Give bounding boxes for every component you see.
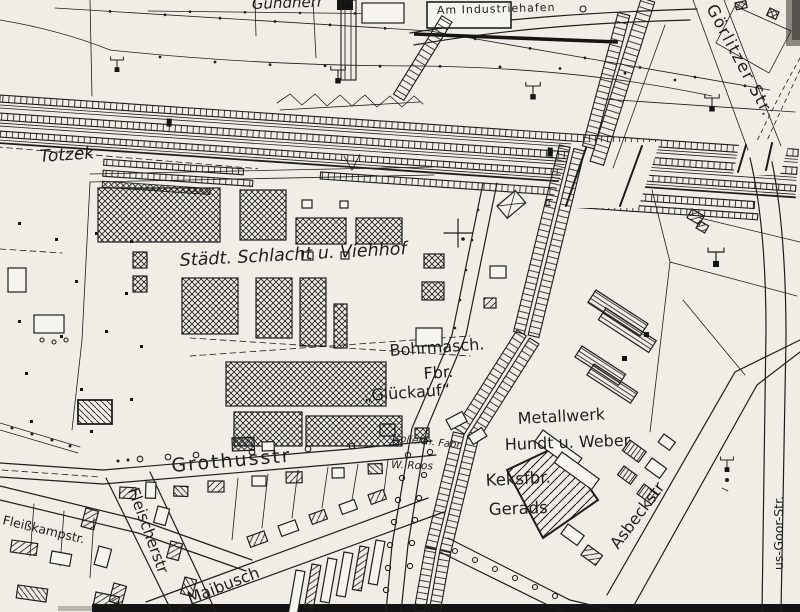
label-am-industriehafen: Am Industriehafen: [437, 1, 556, 17]
label-w-roos: W. Roos: [391, 459, 434, 472]
label-goor-str: us-Goor-Str.: [771, 496, 786, 570]
map-canvas: Totzek Gundherr Am Industriehafen Görlit…: [0, 0, 800, 612]
label-keksfabrik-1: Keksfbr.: [485, 468, 551, 490]
power-pole-icon: [708, 248, 724, 267]
harbor-symbol-icon: [580, 6, 586, 12]
label-totzek: Totzek: [39, 143, 96, 167]
label-keksfabrik-2: Gerads: [488, 498, 548, 519]
power-pole-icon: [111, 57, 124, 72]
label-goerlitzer-str: Görlitzer Str.: [702, 1, 777, 120]
label-metallwerk-2: Hundt u. Weber: [504, 431, 630, 454]
power-pole-icon: [526, 82, 540, 99]
label-bohrmasch-1: Bohrmasch.: [389, 334, 485, 360]
label-grothusstr: Grothusstr: [171, 445, 293, 477]
label-schlachthof: Städt. Schlacht u. Viehhof: [179, 239, 410, 271]
schlachthof-complex: [90, 167, 470, 446]
city-map-svg: Totzek Gundherr Am Industriehafen Görlit…: [0, 0, 800, 612]
power-pole-icon: [721, 457, 734, 472]
label-metallwerk-1: Metallwerk: [517, 404, 606, 428]
power-pole-icon: [705, 94, 719, 111]
map-labels: Totzek Gundherr Am Industriehafen Görlit…: [1, 0, 786, 608]
scan-edge-artifacts: [58, 0, 800, 612]
survey-cross-icon: [444, 219, 472, 247]
